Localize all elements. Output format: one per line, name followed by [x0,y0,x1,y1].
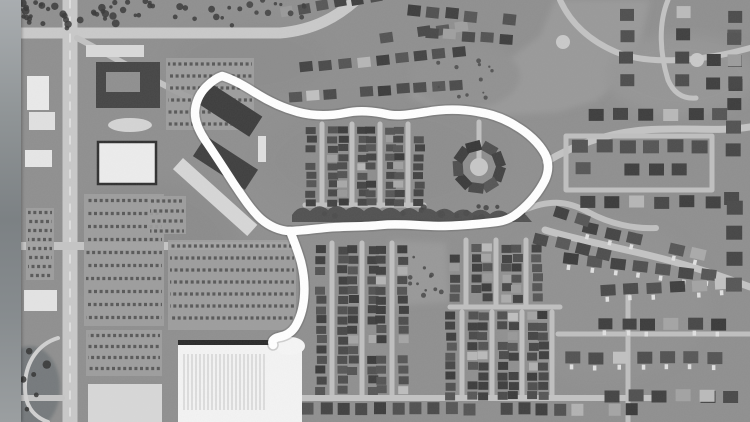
photo-grain-overlay [0,0,750,422]
aerial-basemap [0,0,750,422]
video-edge-bar [0,0,21,422]
aerial-map [0,0,750,422]
